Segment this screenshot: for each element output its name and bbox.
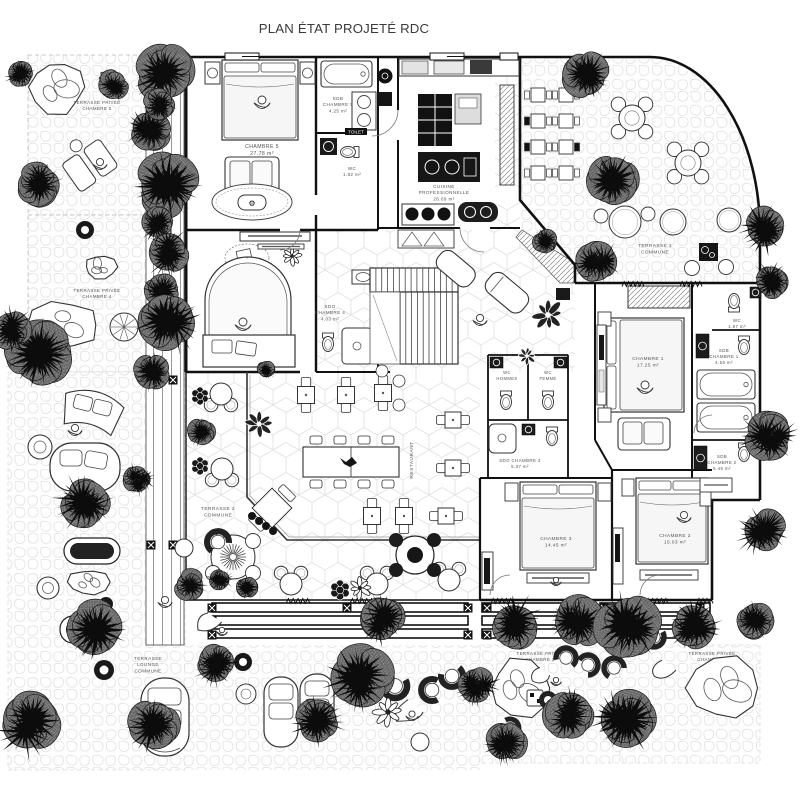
svg-text:TERRASSE: TERRASSE	[134, 656, 162, 661]
svg-text:14.45 m²: 14.45 m²	[545, 542, 567, 548]
svg-text:COMMUNE: COMMUNE	[134, 668, 161, 673]
svg-text:PROFESSIONNELLE: PROFESSIONNELLE	[419, 190, 470, 195]
svg-text:SDO CHAMBRE 3: SDO CHAMBRE 3	[499, 458, 541, 463]
svg-text:4.25 m²: 4.25 m²	[329, 108, 347, 113]
svg-text:CHAMBRE 5: CHAMBRE 5	[323, 102, 353, 107]
svg-text:⚙: ⚙	[248, 199, 255, 208]
svg-text:5.45 m²: 5.45 m²	[713, 466, 731, 471]
svg-text:HOMMES: HOMMES	[496, 376, 517, 381]
svg-text:LOUNGE: LOUNGE	[137, 662, 159, 667]
svg-text:SDB: SDB	[719, 348, 729, 353]
svg-text:TERRASSE 1: TERRASSE 1	[638, 243, 672, 249]
svg-text:SDB: SDB	[333, 96, 344, 101]
svg-text:5.37 m²: 5.37 m²	[511, 464, 529, 469]
svg-text:WC: WC	[348, 166, 357, 171]
svg-text:SDB: SDB	[717, 454, 727, 459]
svg-text:CHAMBRE 4: CHAMBRE 4	[315, 310, 345, 315]
svg-text:SDO: SDO	[324, 304, 335, 309]
svg-text:COMMUNE: COMMUNE	[204, 512, 232, 518]
svg-text:CHAMBRE 3: CHAMBRE 3	[540, 536, 572, 542]
svg-text:4.55 m²: 4.55 m²	[715, 360, 733, 365]
svg-text:CHAMBRE 1: CHAMBRE 1	[709, 354, 738, 359]
svg-text:WC: WC	[503, 370, 511, 375]
svg-text:4.03 m²: 4.03 m²	[321, 316, 339, 321]
svg-text:CHAMBRE 5: CHAMBRE 5	[82, 106, 111, 111]
svg-text:1.87 m²: 1.87 m²	[728, 324, 746, 329]
svg-text:TOILET: TOILET	[348, 130, 364, 135]
svg-text:FEMME: FEMME	[539, 376, 556, 381]
svg-text:CHAMBRE 4: CHAMBRE 4	[82, 294, 111, 299]
svg-text:15.03 m²: 15.03 m²	[664, 539, 686, 545]
svg-text:17.25 m²: 17.25 m²	[637, 362, 659, 368]
svg-text:27.78 m²: 27.78 m²	[250, 151, 274, 157]
svg-text:CHAMBRE 2: CHAMBRE 2	[707, 460, 736, 465]
svg-text:COMMUNE: COMMUNE	[641, 249, 669, 255]
svg-text:TERRASSE PRIVÉE: TERRASSE PRIVÉE	[689, 651, 736, 656]
svg-text:WC: WC	[544, 370, 552, 375]
svg-text:CHAMBRE 1: CHAMBRE 1	[632, 356, 664, 362]
svg-text:CUISINE: CUISINE	[433, 184, 454, 189]
svg-text:TERRASSE PRIVÉE: TERRASSE PRIVÉE	[74, 288, 121, 293]
svg-text:TERRASSE 2: TERRASSE 2	[201, 506, 235, 512]
svg-text:TERRASSE PRIVÉE: TERRASSE PRIVÉE	[74, 100, 121, 105]
svg-text:CHAMBRE 2: CHAMBRE 2	[659, 533, 691, 539]
svg-text:RESTAURANT: RESTAURANT	[409, 441, 415, 478]
svg-text:1.82 m²: 1.82 m²	[343, 172, 361, 177]
svg-text:CHAMBRE 5: CHAMBRE 5	[245, 144, 279, 150]
svg-text:WC: WC	[733, 318, 741, 323]
svg-text:26.09 m²: 26.09 m²	[433, 196, 454, 201]
svg-text:PLAN ÉTAT PROJETÉ RDC: PLAN ÉTAT PROJETÉ RDC	[259, 21, 430, 36]
